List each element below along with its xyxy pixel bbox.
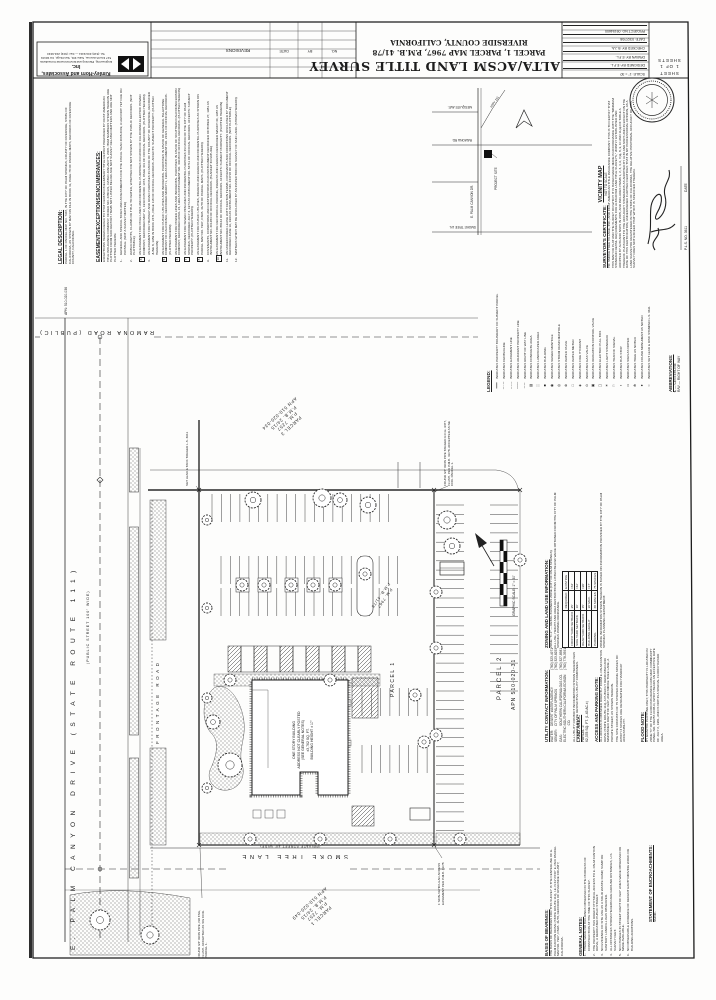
legend-symbol-icon: ▭ bbox=[626, 379, 630, 392]
legend-item-label: INDICATES ELECTRIC PULL BOX bbox=[598, 331, 602, 379]
legend-symbol-icon: ─ ─ bbox=[523, 379, 527, 392]
easement-note-se: 1' NON-VEHICULAR ACCESS EASEMENT PER P.M… bbox=[438, 845, 445, 905]
encroachments-block: STATEMENT OF ENCROACHMENTS: NONE. bbox=[648, 836, 657, 922]
legend-item-label: INDICATES IRRIGATION CONTROL VALVE bbox=[591, 318, 595, 379]
abbreviation-item: R/W — RIGHT OF WAY bbox=[677, 334, 681, 392]
road-label-ramona: RAMONA ROAD (PUBLIC) bbox=[42, 329, 154, 335]
general-notes-block: GENERAL NOTES: 1.THERE WERE NO BUILDINGS… bbox=[578, 844, 636, 956]
legend-heading: LEGEND: bbox=[487, 292, 492, 392]
legend-item: ✻INDICATES TREE AS NOTED bbox=[631, 292, 638, 392]
legend-item: ●INDICATES FOUND MONUMENT AS NOTED bbox=[638, 292, 645, 392]
sheet-number-block: SHEET 1 OF 1 SHEETS bbox=[652, 26, 686, 76]
legend-item: ◈INDICATES FIRE HYDRANT bbox=[576, 292, 583, 392]
parcel2-label: PARCEL 2 bbox=[497, 640, 503, 700]
legend-symbol-icon: □ bbox=[571, 379, 575, 392]
easement-item: 10AN EASEMENT FOR RECIPROCAL PARKING, IN… bbox=[216, 88, 223, 262]
general-note-item: 3.NO EVIDENCE OF SITE USE AS A SOLID WAS… bbox=[601, 844, 608, 956]
legal-description-block: LEGAL DESCRIPTION: PARCEL 1 OF PARCEL MA… bbox=[58, 88, 76, 264]
legend-symbol-icon: ━━━ bbox=[495, 379, 499, 392]
legal-body: PARCEL 1 OF PARCEL MAP NO. 7967, IN THE … bbox=[65, 88, 76, 264]
land-area-block: LAND AREA: PARCEL 1: 62,378 SQ. FT. (1.4… bbox=[576, 690, 589, 742]
easement-item-text: AN EASEMENT FOR POWER LINES AND INCIDENT… bbox=[175, 88, 182, 255]
legend-symbol-icon: ☀ bbox=[605, 379, 609, 392]
north-arrow-icon bbox=[475, 533, 494, 566]
easement-item-number: 12. bbox=[235, 258, 239, 262]
easement-item-text: COVENANTS, CONDITIONS AND RESTRICTIONS I… bbox=[207, 88, 214, 255]
easement-item: 7AN EASEMENT FOR SEWER PIPELINES AND INC… bbox=[184, 88, 195, 262]
project-info-row: DESIGNED BY: E.F.L. bbox=[563, 60, 647, 69]
legend-item: ─ · ─INDICATES CENTERLINE bbox=[500, 292, 507, 392]
legend-item-label: INDICATES ADJACENT PROPERTY LINE bbox=[516, 320, 520, 379]
easement-item: 12.MATTERS WHICH MAY BE DISCLOSED BY AN … bbox=[235, 88, 239, 262]
legend-item: ▢INDICATES ELECTRIC PULL BOX bbox=[597, 292, 604, 392]
legend-symbol-icon: ○ bbox=[647, 379, 651, 392]
general-note-item: 4.ALL DISTANCES SHOWN HEREON ARE GROUND … bbox=[610, 844, 617, 956]
legend-item: ━━━INDICATES PROPERTY BOUNDARY OF SUBJEC… bbox=[494, 292, 501, 392]
revisions-col-by: BY bbox=[300, 49, 320, 53]
legend-item: ⚐INDICATES TRAFFIC SIGNAL bbox=[611, 292, 618, 392]
easements-intro: EXCEPTIONS HEREIN REFER TO THAT CERTAIN … bbox=[103, 88, 118, 262]
legend-symbol-icon: ─── bbox=[516, 379, 520, 392]
flood-note-block: FLOOD NOTE: BY GRAPHIC PLOTTING ONLY, TH… bbox=[640, 648, 664, 742]
legend-symbol-icon: ▣ bbox=[591, 379, 595, 392]
legend-symbol-icon: ░ bbox=[536, 379, 540, 392]
legend-item-label: INDICATES TREE AS NOTED bbox=[633, 337, 637, 379]
easement-item: 9.COVENANTS, CONDITIONS AND RESTRICTIONS… bbox=[207, 88, 214, 262]
legend-item: – – –INDICATES EASEMENT LINE bbox=[507, 292, 514, 392]
revisions-col-no: NO. bbox=[324, 49, 344, 53]
easement-item: 5AN EASEMENT FOR PUBLIC UTILITIES AND IN… bbox=[162, 88, 173, 262]
road-label-smoke-tree-sub: (PRIVATE STREET 40' WIDE) bbox=[240, 844, 340, 848]
legend-item: ⊗INDICATES WATER VALVE bbox=[562, 292, 569, 392]
easement-item: 2.WATER RIGHTS, CLAIMS OR TITLE TO WATER… bbox=[130, 88, 137, 262]
general-note-number: 6. bbox=[627, 953, 631, 956]
legend-item: ▭INDICATES SIGN AS NOTED bbox=[624, 292, 631, 392]
legend-symbol-icon: ▨ bbox=[529, 379, 533, 392]
legend-symbol-icon: – – – bbox=[509, 379, 513, 392]
road-label-frontage: FRONTAGE ROAD bbox=[155, 648, 160, 744]
encroachments-body: NONE. bbox=[653, 836, 657, 922]
legend-item-label: INDICATES GAS VALVE bbox=[585, 345, 589, 379]
easement-item-text: AN UNRECORDED LEASE WITH CERTAIN TERMS, … bbox=[226, 88, 233, 255]
legend-item-label: INDICATES LANDSCAPED AREA bbox=[536, 332, 540, 379]
utility-label: ELECTRIC: bbox=[563, 725, 572, 742]
zoning-table-cell: 68 SPACES bbox=[592, 591, 598, 611]
zoning-table: REQUIREDEXISTINGFRONT YARD SETBACK25'±64… bbox=[562, 571, 598, 648]
general-note-number: 5. bbox=[619, 953, 623, 956]
utility-row: ELECTRIC:SOUTHERN CALIFORNIA EDISON CO.(… bbox=[563, 648, 572, 742]
legend-item-label: INDICATES TRAFFIC SIGNAL bbox=[612, 337, 616, 379]
project-info-row: PROJECT NO. 09154600 bbox=[563, 25, 647, 34]
certificate-license: P.L.S. NO. 3611 bbox=[684, 210, 688, 250]
access-p1: ALL ACCESS IS OBTAINED DIRECTLY FROM E. … bbox=[600, 648, 615, 742]
project-info-table: SCALE: 1" = 30'DESIGNED BY: E.F.L.DRAWN … bbox=[563, 23, 647, 77]
legend-item: ■INDICATES BUILDING bbox=[542, 292, 549, 392]
vicinity-site-label: PROJECT SITE bbox=[494, 154, 498, 190]
sheet-title-main: ALTA/ACSM LAND TITLE SURVEY bbox=[358, 59, 560, 74]
easement-item: 3AN EASEMENT FOR POLE LINES AND INCIDENT… bbox=[139, 88, 146, 262]
legend-item: ◎INDICATES STORM DRAIN MANHOLE bbox=[556, 292, 563, 392]
basis-body: THE BASIS OF BEARINGS FOR THIS SURVEY IS… bbox=[550, 846, 565, 956]
legend-symbol-icon: ▪ bbox=[619, 379, 623, 392]
vicinity-map bbox=[432, 88, 592, 235]
legend-item: ▨INDICATES CONCRETE AREA bbox=[528, 292, 535, 392]
legend-symbol-icon: ▢ bbox=[598, 379, 602, 392]
general-note-number: 1. bbox=[584, 953, 588, 956]
zoning-table-cell: 75 SPACES bbox=[592, 571, 598, 591]
easement-item-text: WATER RIGHTS, CLAIMS OR TITLE TO WATER, … bbox=[130, 88, 137, 255]
legend-item: ───INDICATES ADJACENT PROPERTY LINE bbox=[514, 292, 521, 392]
easement-item-number: 6 bbox=[175, 257, 181, 262]
legend-symbol-icon: ⊗ bbox=[564, 379, 568, 392]
zoning-note: ZONING INFORMATION SHOWN HEREON IS BASED… bbox=[600, 483, 607, 648]
certificate-date-label: DATE bbox=[684, 172, 688, 192]
encroachments-heading: STATEMENT OF ENCROACHMENTS: bbox=[648, 836, 653, 922]
legend-item-label: INDICATES SEWER MANHOLE bbox=[550, 334, 554, 379]
utilities-block: UTILITY CONTACT INFORMATION: WATER:DESER… bbox=[544, 648, 580, 742]
general-note-item: 2.THE PROPERTY HAS DIRECT PHYSICAL ACCES… bbox=[593, 844, 600, 956]
general-note-number: 2. bbox=[593, 953, 597, 956]
general-note-text: THERE WERE NO BUILDINGS OBSERVED IN THE … bbox=[584, 844, 591, 951]
legend-symbol-icon: ⊙ bbox=[585, 379, 589, 392]
easement-item-text: GENERAL AND SPECIAL TAXES AND ASSESSMENT… bbox=[120, 88, 127, 255]
access-p2: THE SITE CONSISTS OF 75 STRIPED PARKING … bbox=[616, 648, 627, 742]
legend-symbol-icon: ● bbox=[640, 379, 644, 392]
sheet-title-block: ALTA/ACSM LAND TITLE SURVEY PARCEL 1, PA… bbox=[358, 26, 560, 74]
legend-item: ▣INDICATES IRRIGATION CONTROL VALVE bbox=[590, 292, 597, 392]
legend-symbol-icon: ✻ bbox=[633, 379, 637, 392]
general-note-item: 5.NO CHANGES IN STREET RIGHT OF WAY LINE… bbox=[619, 844, 626, 956]
project-info-row: CHECKED BY: B.J.A. bbox=[563, 42, 647, 51]
sheet-word-2: 1 OF 1 bbox=[652, 63, 686, 70]
easement-item-text: AN EASEMENT FOR SEWER PIPELINES AND INCI… bbox=[184, 88, 195, 255]
easement-item-text: AN EASEMENT FOR HIGHWAY AND ROAD PURPOSE… bbox=[148, 88, 159, 255]
legend-item-label: INDICATES SET LEAD & DISC STAMPED L.S. 3… bbox=[647, 306, 651, 379]
parcel2-apn-label: APN 510-020-31 bbox=[511, 634, 517, 710]
legend-symbol-icon: ⚐ bbox=[612, 379, 616, 392]
legend-item-label: INDICATES LIGHT STANDARD bbox=[605, 335, 609, 379]
easement-item-number: 11. bbox=[226, 258, 230, 262]
sheet-title-sub2: RIVERSIDE COUNTY, CALIFORNIA bbox=[358, 38, 560, 47]
easement-item: 4.AN EASEMENT FOR HIGHWAY AND ROAD PURPO… bbox=[148, 88, 159, 262]
legend-item: □INDICATES WATER METER bbox=[569, 292, 576, 392]
vicinity-street-vertical: E. PALM CANYON DR. bbox=[470, 160, 474, 218]
legend-symbol-icon: ■ bbox=[543, 379, 547, 392]
legend-item: ─ ─INDICATES RIGHT OF WAY LINE bbox=[521, 292, 528, 392]
vicinity-street-bottom: SMOKE TREE LN. bbox=[436, 225, 476, 229]
road-label-palm-canyon: E. PALM CANYON DRIVE (STATE ROUTE 111) bbox=[70, 435, 77, 950]
utility-name: SOUTHERN CALIFORNIA EDISON CO. bbox=[563, 672, 572, 725]
easements-items: 1.GENERAL AND SPECIAL TAXES AND ASSESSME… bbox=[120, 88, 239, 262]
legend-item-label: INDICATES FOUND MONUMENT AS NOTED bbox=[640, 315, 644, 379]
easement-item-number: 10 bbox=[216, 255, 222, 262]
utilities-heading: UTILITY CONTACT INFORMATION: bbox=[544, 648, 549, 742]
legal-apn: APN: 510-020-036 bbox=[64, 259, 68, 315]
legend-item: ◉INDICATES SEWER MANHOLE bbox=[549, 292, 556, 392]
land-area-value: 62,378 SQ. FT. (1.43 AC.±) bbox=[585, 690, 589, 742]
project-info-row: SCALE: 1" = 30' bbox=[563, 68, 647, 77]
zoning-block: ZONING AND LAND USE INFORMATION: ZONE: "… bbox=[544, 483, 607, 648]
legend-items: ━━━INDICATES PROPERTY BOUNDARY OF SUBJEC… bbox=[494, 292, 652, 392]
legend-symbol-icon: ◈ bbox=[578, 379, 582, 392]
legend-item-label: INDICATES WATER METER bbox=[571, 339, 575, 379]
building-label-line: BUILDING HEIGHT ± 17' bbox=[310, 692, 315, 788]
flood-body: BY GRAPHIC PLOTTING ONLY, THIS PROPERTY … bbox=[646, 648, 664, 742]
revisions-col-date: DATE bbox=[272, 49, 296, 53]
general-note-text: NO OBSERVABLE EVIDENCE OF RECENT EARTH M… bbox=[627, 844, 634, 951]
general-note-number: 4. bbox=[610, 953, 614, 956]
basis-of-bearings-block: BASIS OF BEARINGS: THE BASIS OF BEARINGS… bbox=[544, 846, 565, 956]
legend-item-label: INDICATES BUILDING bbox=[543, 347, 547, 379]
legend-symbol-icon: ◎ bbox=[557, 379, 561, 392]
legend-symbol-icon: ◉ bbox=[550, 379, 554, 392]
vicinity-street-top: MESQUITE AVE. bbox=[436, 105, 472, 109]
general-note-text: ALL DISTANCES SHOWN HEREON ARE GROUND DI… bbox=[610, 844, 617, 951]
monument-note-ne: FOUND 3/4" IRON PIPE TAGGED R.C.E. 9377,… bbox=[444, 414, 455, 486]
certificate-body: TO: SMOKE TREE VILLAGE, INC.; AND FIRST … bbox=[608, 96, 637, 268]
easement-item: 11.AN UNRECORDED LEASE WITH CERTAIN TERM… bbox=[226, 88, 233, 262]
easement-item-text: AN EASEMENT FOR PUBLIC UTILITIES, INGRES… bbox=[197, 88, 204, 255]
legend-item-label: INDICATES SIGN AS NOTED bbox=[626, 338, 630, 379]
easement-item: 6AN EASEMENT FOR POWER LINES AND INCIDEN… bbox=[175, 88, 182, 262]
legend-item-label: INDICATES FIRE HYDRANT bbox=[578, 339, 582, 379]
easement-item-text: AN EASEMENT FOR PUBLIC UTILITIES AND INC… bbox=[162, 88, 173, 255]
legend-item: ░INDICATES LANDSCAPED AREA bbox=[535, 292, 542, 392]
revisions-title: REVISIONS bbox=[200, 48, 276, 53]
easement-item: 8AN EASEMENT FOR PUBLIC UTILITIES, INGRE… bbox=[197, 88, 204, 262]
easement-item-text: AN EASEMENT FOR RECIPROCAL PARKING, INGR… bbox=[216, 88, 223, 255]
zoning-source-line: ALL USE, HEIGHT AND AREA RESTRICTIONS LI… bbox=[554, 483, 561, 648]
general-note-item: 1.THERE WERE NO BUILDINGS OBSERVED IN TH… bbox=[584, 844, 591, 956]
legend-item: ☀INDICATES LIGHT STANDARD bbox=[604, 292, 611, 392]
easement-item-number: 9. bbox=[207, 259, 211, 262]
firm-block: Kimley-Horn and Associates, Inc. Enginee… bbox=[37, 42, 115, 76]
legend-item: ⊙INDICATES GAS VALVE bbox=[583, 292, 590, 392]
access-parking-block: ACCESS AND PARKING NOTE: ALL ACCESS IS O… bbox=[594, 648, 627, 742]
easements-block: EASEMENTS/EXCEPTIONS/ENCUMBRANCES: EXCEP… bbox=[96, 88, 241, 262]
kimley-horn-logo-icon bbox=[118, 56, 144, 72]
easement-item-text: AN EASEMENT FOR POLE LINES AND INCIDENTA… bbox=[139, 88, 146, 255]
legend-item: ○INDICATES SET LEAD & DISC STAMPED L.S. … bbox=[645, 292, 652, 392]
monument-note-nw: SET LEAD & TACK TAGGED L.S. 3611 bbox=[186, 428, 190, 486]
easement-item-number: 1. bbox=[120, 259, 124, 262]
project-info-row: DRAWN BY: E.F.L. bbox=[563, 51, 647, 60]
sheet-title-sub1: PARCEL 1, PARCEL MAP 7967, P.M.B. 41/78 bbox=[358, 48, 560, 57]
scanned-survey-sheet: Kimley-Horn and Associates, Inc. Enginee… bbox=[0, 0, 716, 1000]
utility-phone: (760) 778-3591 bbox=[563, 648, 572, 672]
zoning-table-cell: PARKING bbox=[592, 610, 598, 647]
general-note-text: NO EVIDENCE OF SITE USE AS A SOLID WASTE… bbox=[601, 844, 608, 951]
monument-note-sw: FOUND 3/4" IRON PIPE, NO TAG, FLUSH. ACC… bbox=[198, 900, 209, 958]
general-note-text: NO CHANGES IN STREET RIGHT OF WAY LINES … bbox=[619, 844, 626, 951]
easement-item-number: 3 bbox=[139, 257, 145, 262]
general-note-item: 6.NO OBSERVABLE EVIDENCE OF RECENT EARTH… bbox=[627, 844, 634, 956]
certificate-block: SURVEYOR'S CERTIFICATE: TO: SMOKE TREE V… bbox=[602, 96, 637, 268]
legend-item-label: INDICATES PROPERTY BOUNDARY OF SUBJECT P… bbox=[495, 294, 499, 379]
legend-item-label: INDICATES CONCRETE AREA bbox=[529, 335, 533, 379]
firm-phone: Tel. (619) 234-9411 — Fax: (619) 234-943… bbox=[37, 51, 115, 55]
firm-name: Kimley-Horn and Associates, Inc. bbox=[37, 63, 115, 76]
legend-symbol-icon: ─ · ─ bbox=[502, 379, 506, 392]
legend-item-label: INDICATES STORM DRAIN MANHOLE bbox=[557, 324, 561, 379]
sheet-word-3: SHEETS bbox=[652, 56, 686, 63]
easement-item-number: 7 bbox=[184, 257, 190, 262]
easement-item: 1.GENERAL AND SPECIAL TAXES AND ASSESSME… bbox=[120, 88, 127, 262]
road-label-smoke-tree: SMOKE TREE LANE bbox=[232, 853, 348, 859]
easement-item-number: 2. bbox=[130, 259, 134, 262]
building-label: ONE STORY BUILDINGADDRESS NOT CLEARLY PO… bbox=[292, 692, 315, 788]
graphic-scale-label: GRAPHIC SCALE: 1" = 30' bbox=[512, 538, 516, 616]
general-note-text: THE PROPERTY HAS DIRECT PHYSICAL ACCESS … bbox=[593, 844, 600, 951]
abbreviations-block: ABBREVIATIONS: ℄ — CENTERLINER/W — RIGHT… bbox=[668, 334, 681, 392]
legend-item-label: INDICATES CENTERLINE bbox=[502, 342, 506, 379]
easement-item-number: 8 bbox=[197, 257, 203, 262]
legend-item: ▪INDICATES BUS STOP bbox=[618, 292, 625, 392]
legend-item-label: INDICATES EASEMENT LINE bbox=[509, 337, 513, 379]
legend-block: LEGEND: ━━━INDICATES PROPERTY BOUNDARY O… bbox=[487, 292, 652, 392]
legend-item-label: INDICATES WATER VALVE bbox=[564, 341, 568, 379]
general-note-number: 3. bbox=[601, 953, 605, 956]
vicinity-street-mid: RAMONA RD. bbox=[436, 138, 472, 142]
road-label-palm-canyon-sub: (PUBLIC STREET 100' WIDE) bbox=[86, 534, 90, 664]
legend-item-label: INDICATES RIGHT OF WAY LINE bbox=[523, 332, 527, 379]
easement-item-number: 5 bbox=[162, 257, 168, 262]
surveyor-signature bbox=[648, 166, 681, 250]
project-info-row: DATE: 03/27/08 bbox=[563, 34, 647, 43]
graphic-scale-bar bbox=[500, 540, 507, 606]
parcel1-label: PARCEL 1 bbox=[390, 651, 396, 697]
easement-item-number: 4. bbox=[148, 259, 152, 262]
sheet-word-1: SHEET bbox=[652, 69, 686, 76]
legend-item-label: INDICATES BUS STOP bbox=[619, 346, 623, 379]
easement-item-text: MATTERS WHICH MAY BE DISCLOSED BY AN INS… bbox=[235, 88, 239, 255]
